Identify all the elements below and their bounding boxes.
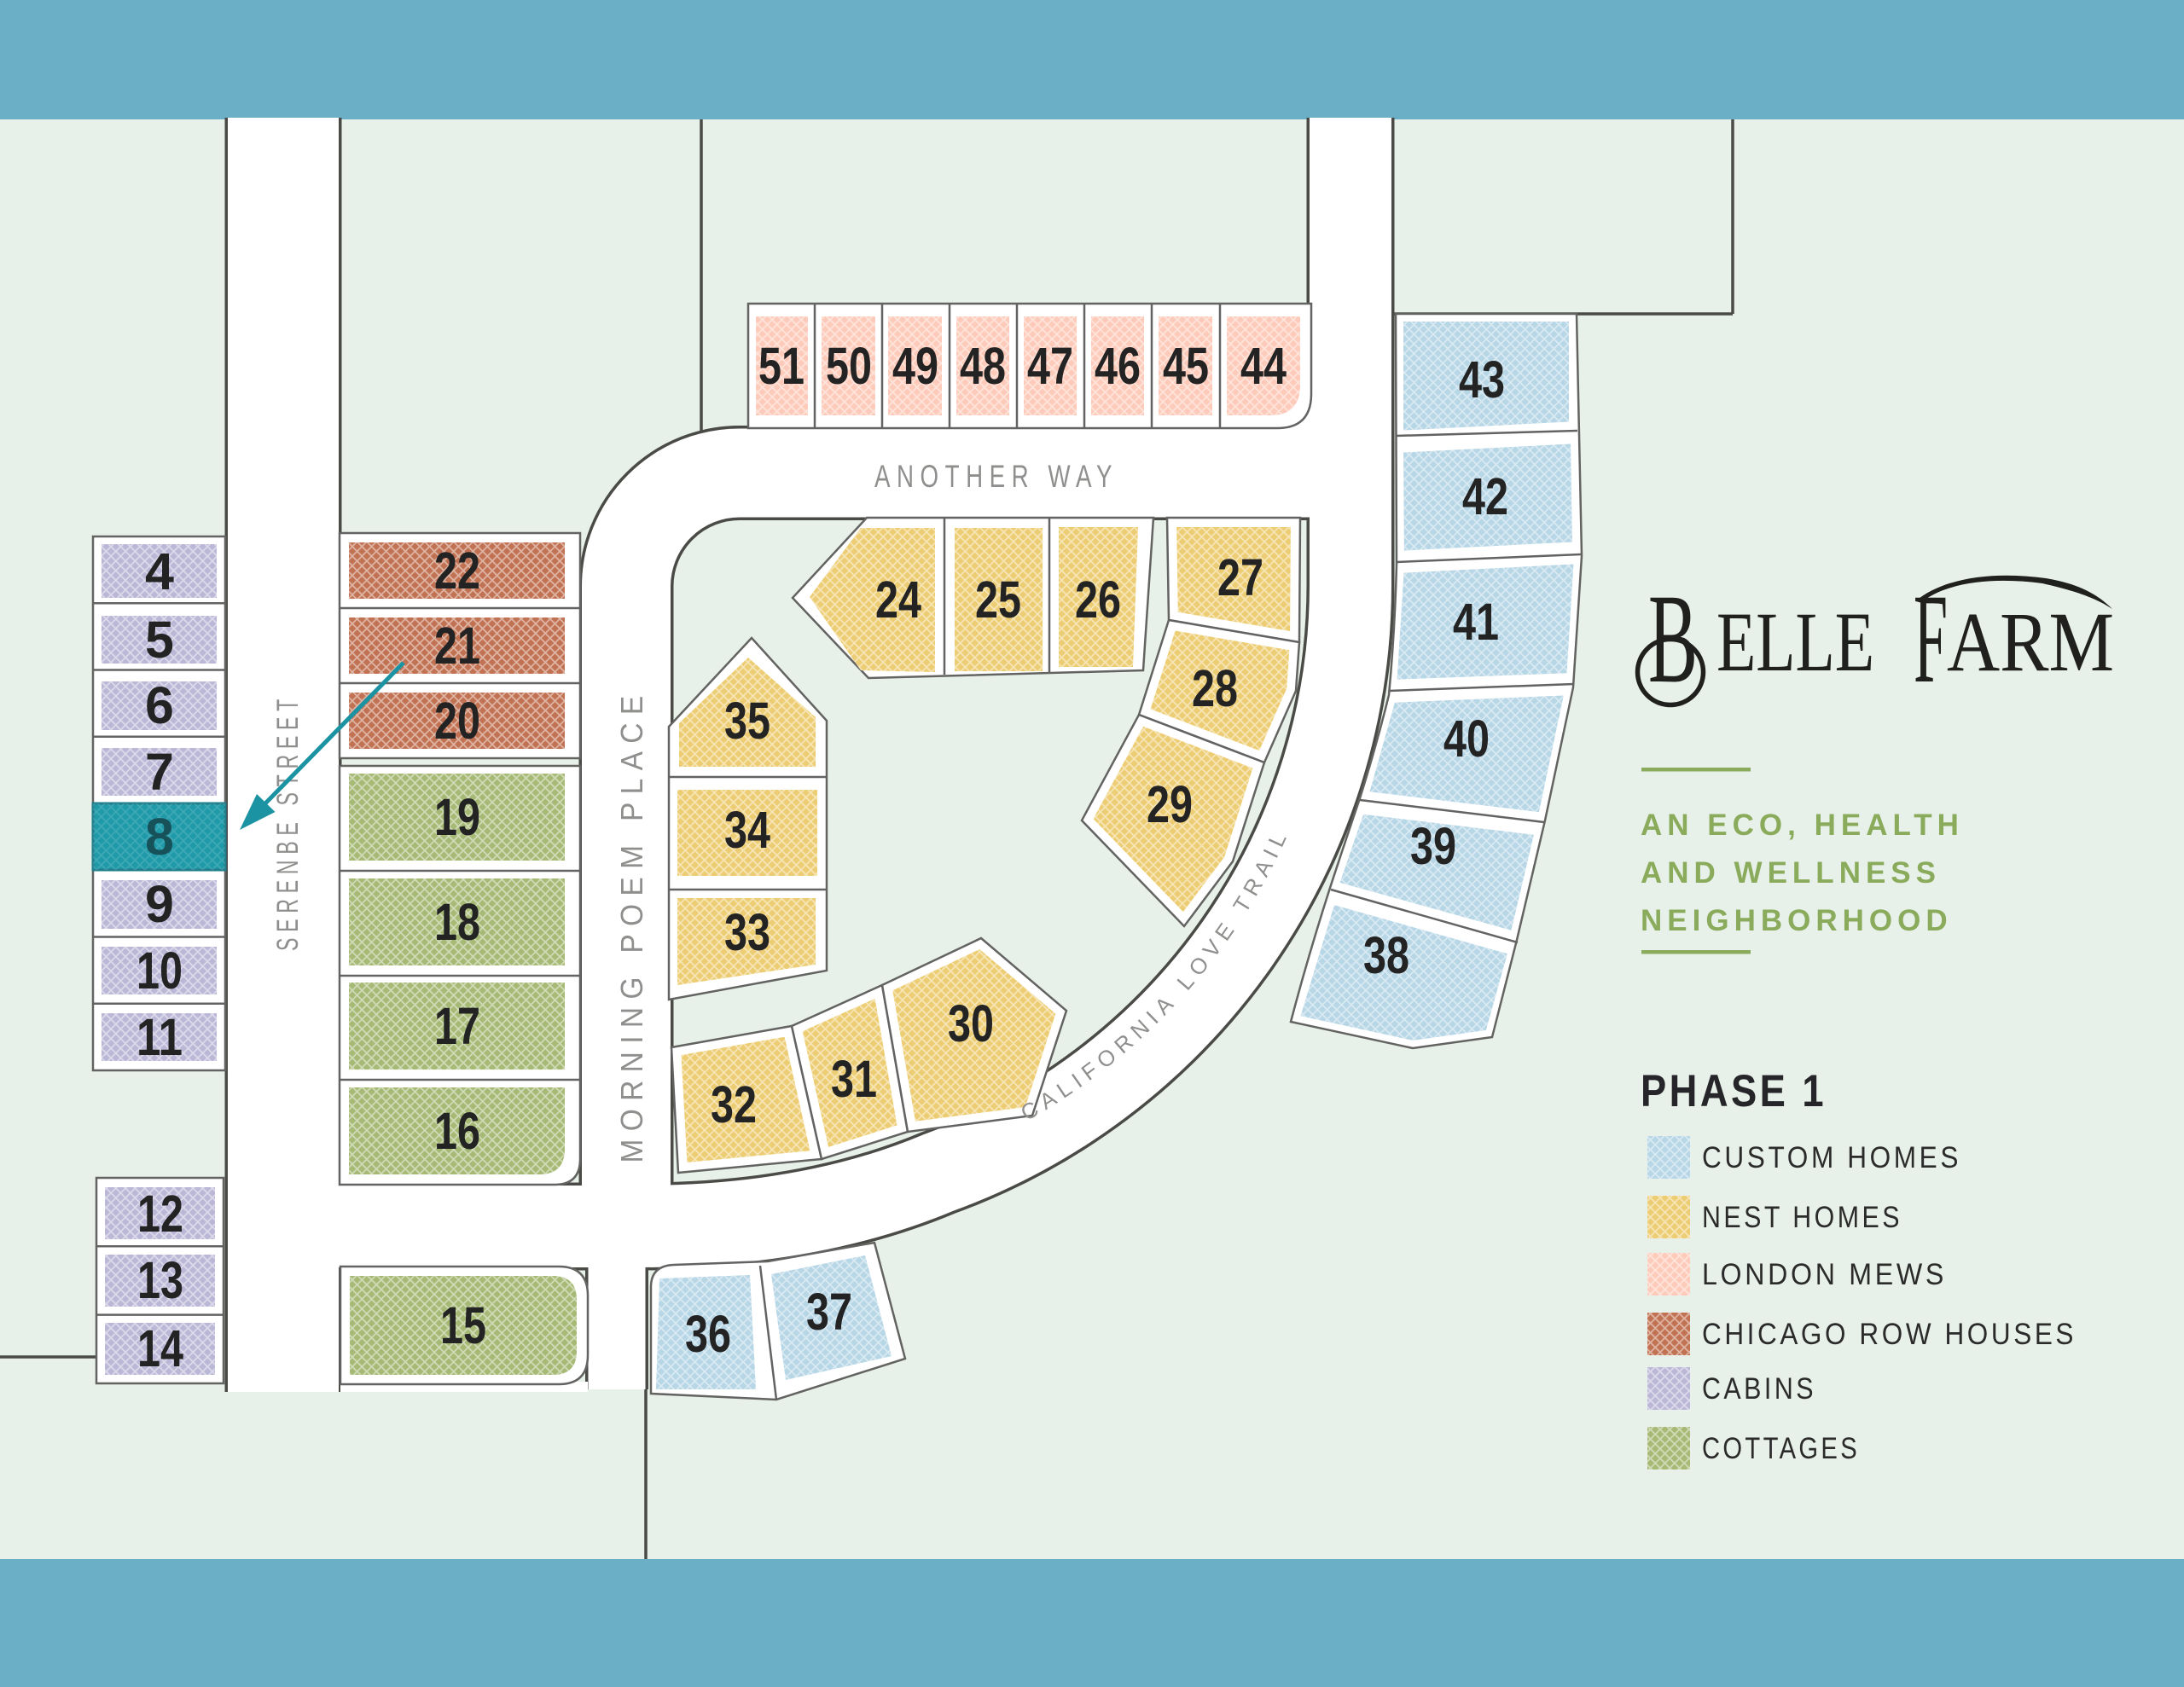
svg-text:NEIGHBORHOOD: NEIGHBORHOOD: [1641, 904, 1953, 937]
svg-text:40: 40: [1443, 710, 1490, 768]
svg-text:31: 31: [831, 1050, 877, 1108]
svg-text:41: 41: [1453, 593, 1499, 651]
svg-text:38: 38: [1363, 926, 1409, 984]
svg-text:6: 6: [145, 676, 174, 734]
svg-text:35: 35: [724, 692, 770, 750]
svg-text:33: 33: [724, 903, 770, 961]
svg-text:MORNING POEM PLACE: MORNING POEM PLACE: [614, 688, 649, 1163]
svg-text:32: 32: [711, 1075, 757, 1133]
svg-text:AN ECO, HEALTH: AN ECO, HEALTH: [1641, 809, 1964, 842]
svg-text:18: 18: [434, 893, 480, 951]
svg-text:5: 5: [145, 611, 174, 669]
svg-text:CABINS: CABINS: [1702, 1372, 1816, 1406]
svg-text:4: 4: [145, 542, 174, 600]
svg-text:20: 20: [434, 692, 480, 750]
svg-text:37: 37: [806, 1283, 852, 1341]
svg-text:14: 14: [137, 1319, 183, 1377]
svg-text:11: 11: [136, 1008, 183, 1066]
svg-text:AND WELLNESS: AND WELLNESS: [1641, 856, 1941, 890]
svg-text:ARM: ARM: [1947, 594, 2114, 689]
svg-text:17: 17: [434, 997, 480, 1055]
svg-text:NEST HOMES: NEST HOMES: [1702, 1201, 1902, 1234]
svg-text:27: 27: [1217, 548, 1263, 606]
svg-text:43: 43: [1459, 351, 1505, 409]
svg-text:B: B: [1648, 568, 1698, 710]
svg-text:CHICAGO ROW HOUSES: CHICAGO ROW HOUSES: [1702, 1318, 2077, 1351]
svg-text:45: 45: [1163, 337, 1209, 395]
svg-text:PHASE 1: PHASE 1: [1641, 1066, 1827, 1116]
svg-text:25: 25: [975, 571, 1021, 629]
svg-text:48: 48: [960, 337, 1006, 395]
svg-text:24: 24: [875, 571, 921, 629]
svg-text:7: 7: [145, 743, 174, 801]
svg-text:39: 39: [1410, 817, 1456, 875]
svg-text:42: 42: [1462, 467, 1508, 525]
svg-text:36: 36: [685, 1305, 731, 1363]
svg-text:28: 28: [1192, 659, 1238, 717]
svg-text:51: 51: [758, 337, 804, 395]
svg-text:49: 49: [892, 337, 938, 395]
svg-text:13: 13: [137, 1251, 183, 1309]
svg-text:12: 12: [137, 1185, 183, 1243]
svg-text:44: 44: [1240, 337, 1287, 395]
svg-text:22: 22: [434, 542, 480, 600]
svg-text:9: 9: [145, 875, 174, 933]
svg-text:ELLE: ELLE: [1716, 594, 1874, 689]
svg-text:8: 8: [145, 808, 174, 866]
svg-text:34: 34: [724, 801, 770, 859]
svg-text:50: 50: [826, 337, 872, 395]
svg-text:19: 19: [434, 788, 480, 846]
svg-text:ANOTHER WAY: ANOTHER WAY: [874, 459, 1118, 494]
svg-text:21: 21: [434, 617, 480, 675]
svg-text:26: 26: [1075, 571, 1121, 629]
svg-text:16: 16: [434, 1102, 480, 1160]
svg-text:LONDON MEWS: LONDON MEWS: [1702, 1258, 1947, 1291]
svg-text:10: 10: [136, 942, 183, 1000]
svg-text:SERENBE STREET: SERENBE STREET: [271, 693, 305, 951]
svg-text:CUSTOM HOMES: CUSTOM HOMES: [1702, 1141, 1961, 1174]
svg-text:COTTAGES: COTTAGES: [1702, 1432, 1860, 1465]
svg-text:15: 15: [440, 1296, 486, 1354]
svg-text:46: 46: [1095, 337, 1141, 395]
svg-text:30: 30: [948, 994, 994, 1052]
svg-text:29: 29: [1147, 775, 1193, 833]
svg-text:47: 47: [1027, 337, 1073, 395]
